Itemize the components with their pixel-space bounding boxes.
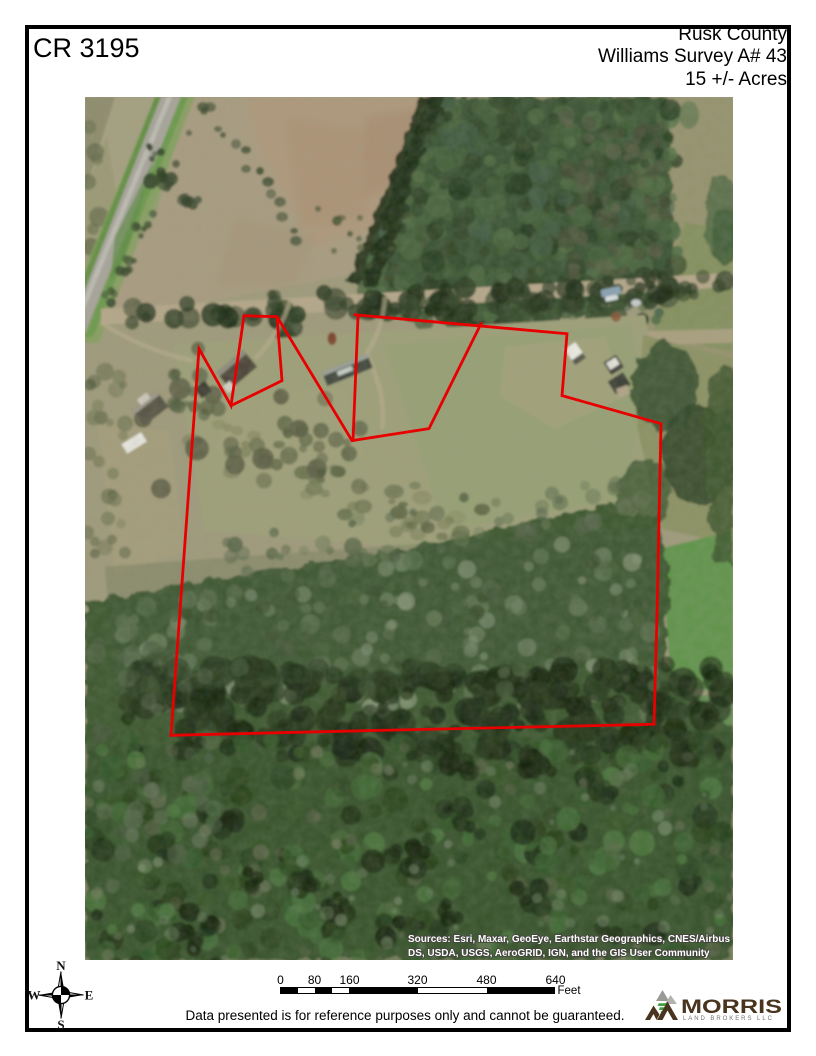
- svg-text:W: W: [28, 988, 41, 1003]
- svg-text:MORRIS: MORRIS: [681, 996, 782, 1018]
- svg-text:DS, USDA, USGS, AeroGRID, IGN,: DS, USDA, USGS, AeroGRID, IGN, and the G…: [408, 948, 710, 959]
- svg-text:N: N: [56, 958, 66, 973]
- svg-text:E: E: [85, 988, 94, 1003]
- svg-text:LAND BROKERS LLC: LAND BROKERS LLC: [683, 1016, 774, 1022]
- svg-text:Sources: Esri, Maxar, GeoEye,: Sources: Esri, Maxar, GeoEye, Earthstar …: [408, 934, 730, 945]
